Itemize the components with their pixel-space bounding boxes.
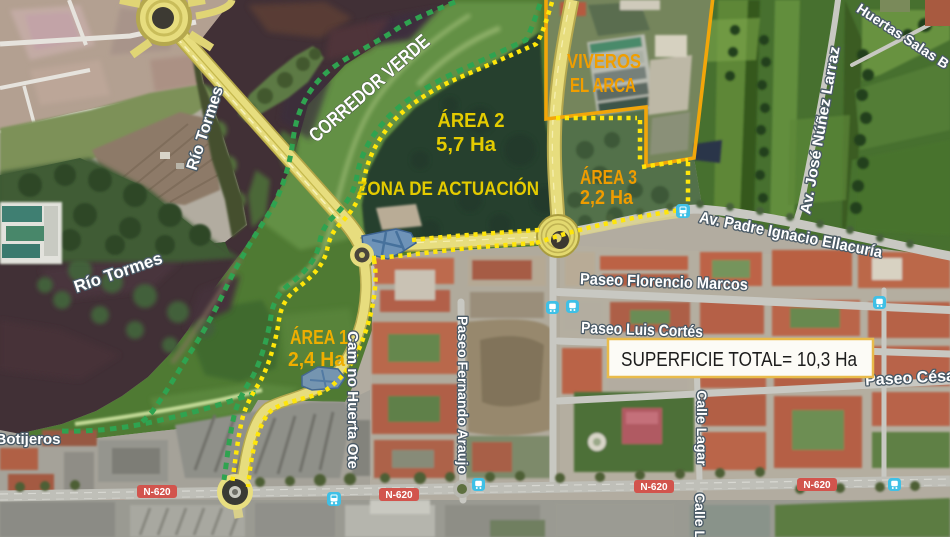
- svg-text:2,4 Ha: 2,4 Ha: [288, 349, 346, 371]
- svg-text:N-620: N-620: [385, 490, 413, 501]
- svg-text:Calle L: Calle L: [692, 493, 708, 537]
- svg-text:N-620: N-620: [803, 480, 831, 491]
- svg-text:SUPERFICIE TOTAL= 10,3 Ha: SUPERFICIE TOTAL= 10,3 Ha: [621, 349, 858, 371]
- svg-text:N-620: N-620: [143, 487, 171, 498]
- svg-text:Calle Lagar: Calle Lagar: [694, 390, 710, 466]
- svg-text:ZONA DE ACTUACIÓN: ZONA DE ACTUACIÓN: [357, 178, 539, 200]
- svg-text:ÁREA 1: ÁREA 1: [290, 326, 348, 349]
- svg-text:VIVEROS: VIVEROS: [567, 51, 641, 73]
- svg-text:Paseo Fernando Araujo: Paseo Fernando Araujo: [455, 316, 470, 474]
- svg-text:ÁREA 3: ÁREA 3: [580, 166, 637, 189]
- svg-text:Cam no Huerta Ote: Cam no Huerta Ote: [344, 331, 361, 469]
- svg-text:ÁREA 2: ÁREA 2: [438, 109, 505, 132]
- svg-text:Botijeros: Botijeros: [0, 431, 61, 448]
- svg-text:EL ARCA: EL ARCA: [570, 75, 636, 97]
- svg-text:N-620: N-620: [640, 482, 668, 493]
- svg-text:5,7 Ha: 5,7 Ha: [436, 134, 497, 156]
- svg-text:2,2 Ha: 2,2 Ha: [580, 187, 634, 209]
